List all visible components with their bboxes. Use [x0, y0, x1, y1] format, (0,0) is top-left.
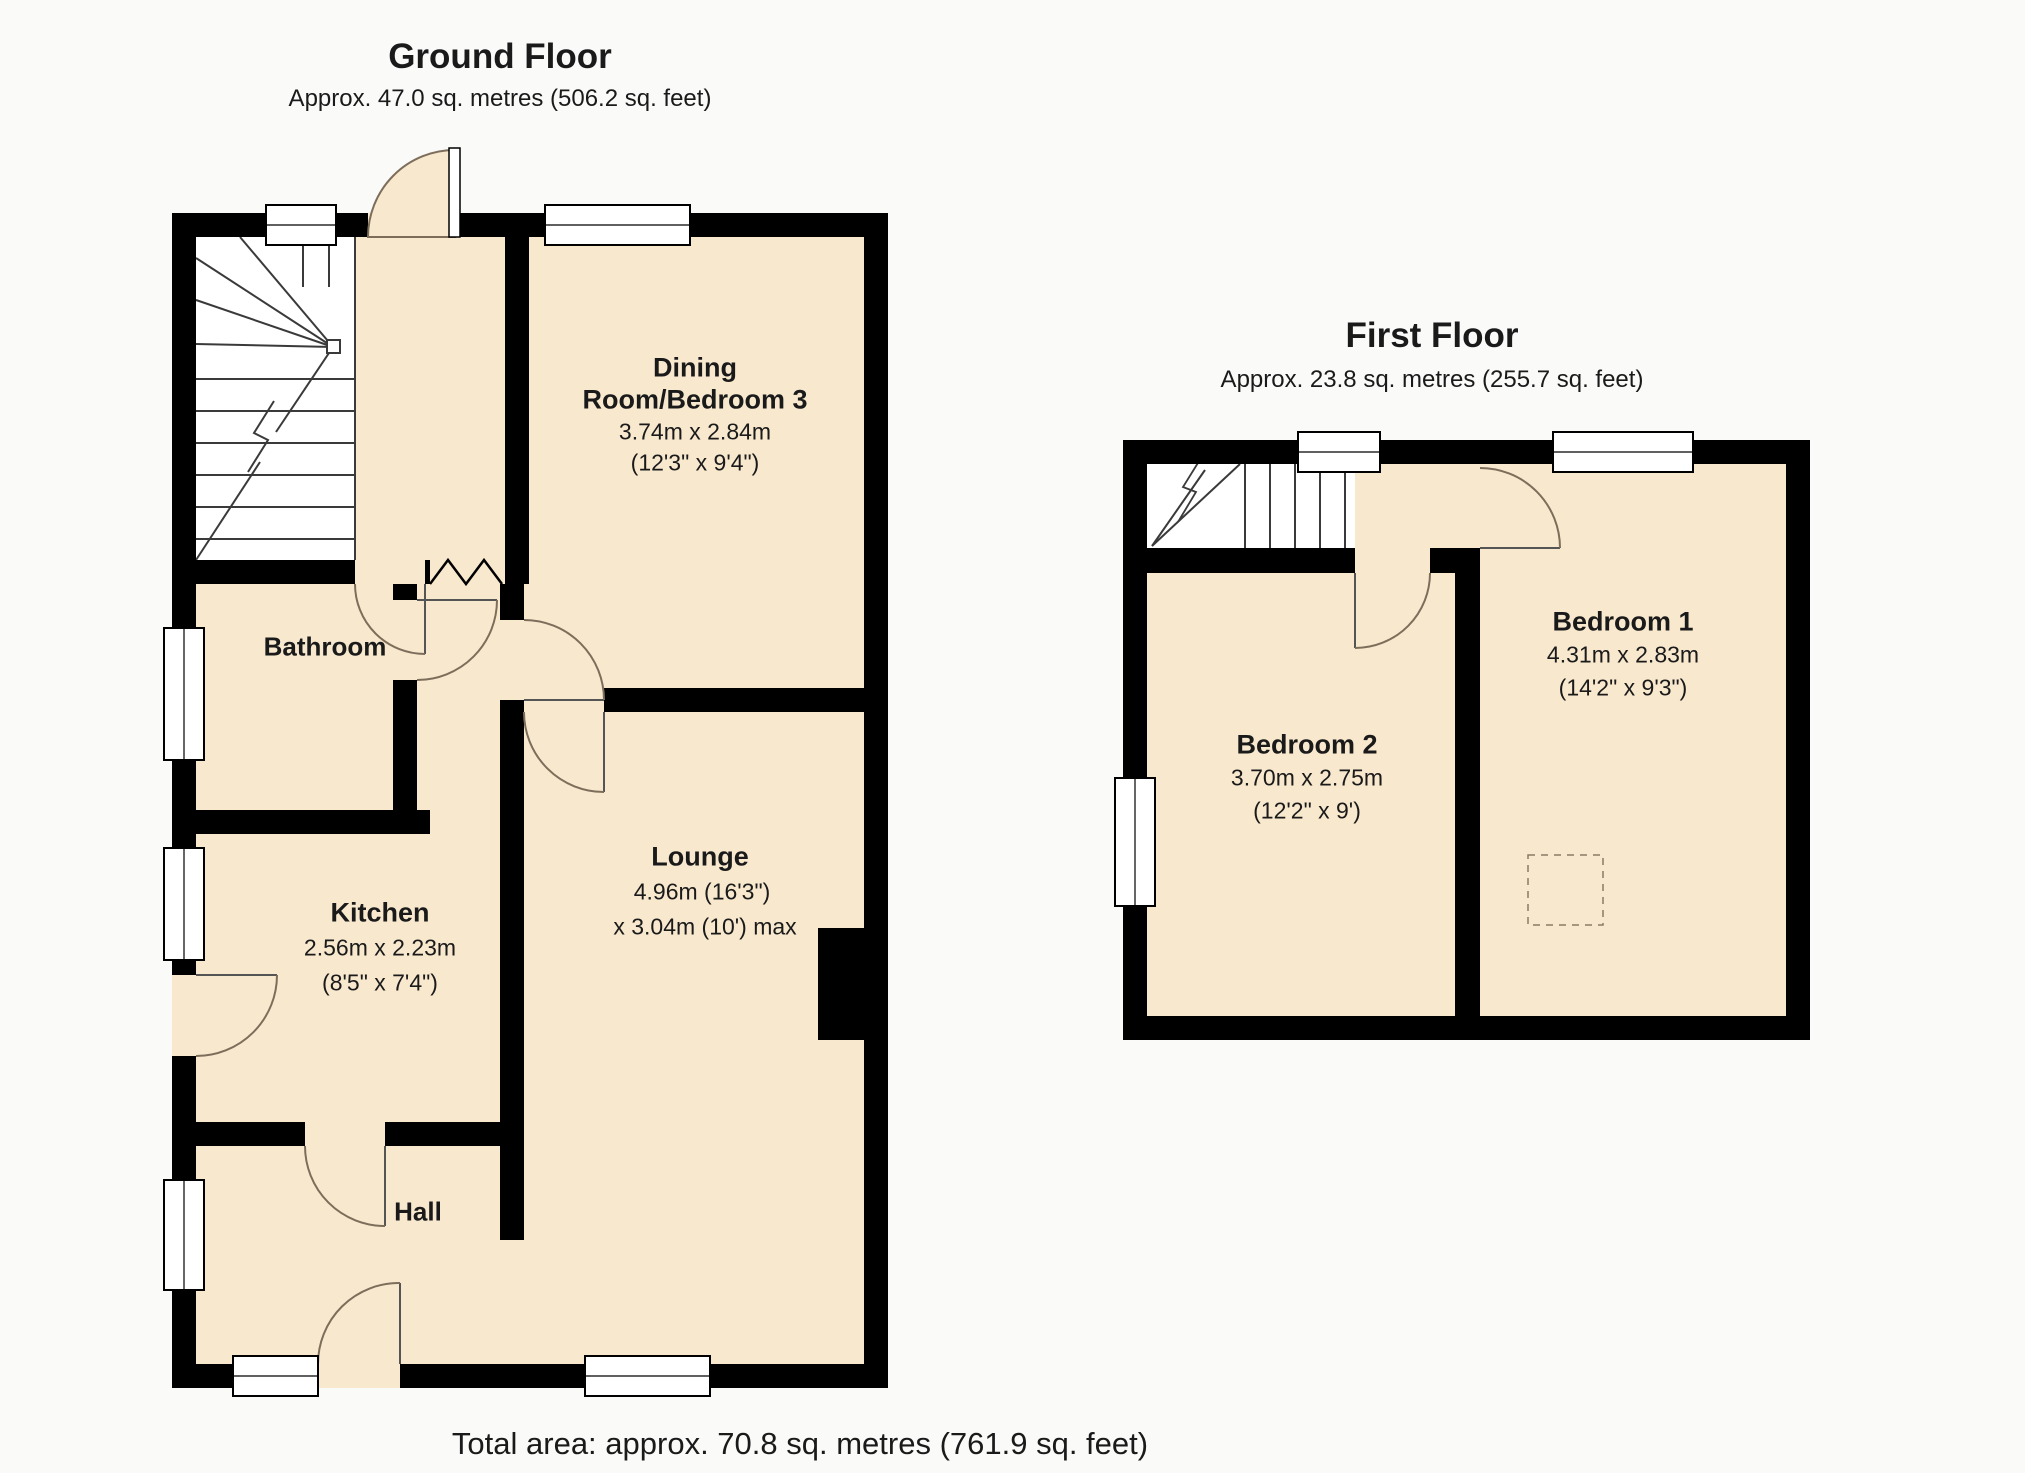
lounge-size-line2: x 3.04m (10') max	[613, 914, 796, 941]
bedroom2-size-metric: 3.70m x 2.75m	[1231, 765, 1383, 792]
ground-staircase	[196, 237, 355, 560]
ground-floor-title: Ground Floor	[388, 37, 612, 77]
bedroom1-size-imperial: (14'2" x 9'3")	[1559, 675, 1688, 702]
hall-bottom-window	[233, 1356, 318, 1396]
front-door-top	[368, 148, 460, 237]
dining-room-size-imperial: (12'3" x 9'4")	[631, 450, 760, 477]
floorplan-page: Ground Floor Approx. 47.0 sq. metres (50…	[0, 0, 2025, 1473]
lounge-window	[585, 1356, 710, 1396]
bathroom-window	[164, 628, 204, 760]
bedroom1-size-metric: 4.31m x 2.83m	[1547, 642, 1699, 669]
bedroom2-label: Bedroom 2	[1236, 730, 1377, 761]
hall-side-window	[164, 1180, 204, 1290]
first-floor-plan	[1115, 432, 1810, 1040]
stairs-window	[266, 205, 336, 245]
dining-room-label-line2: Room/Bedroom 3	[582, 385, 807, 416]
hall-label: Hall	[394, 1197, 442, 1228]
kitchen-label: Kitchen	[330, 898, 429, 929]
ground-floor-plan	[164, 148, 888, 1396]
bedroom2-window	[1115, 778, 1155, 906]
bedroom2-size-imperial: (12'2" x 9')	[1253, 798, 1361, 825]
bedroom1-label: Bedroom 1	[1552, 607, 1693, 638]
total-area-text: Total area: approx. 70.8 sq. metres (761…	[452, 1426, 1148, 1462]
lounge-size-line1: 4.96m (16'3")	[634, 879, 771, 906]
kitchen-size-metric: 2.56m x 2.23m	[304, 935, 456, 962]
dining-room-size-metric: 3.74m x 2.84m	[619, 419, 771, 446]
first-floor-subtitle: Approx. 23.8 sq. metres (255.7 sq. feet)	[1221, 366, 1644, 394]
floorplan-drawing	[0, 0, 2025, 1473]
kitchen-window	[164, 848, 204, 960]
chimney-breast	[818, 928, 888, 1040]
lounge-label: Lounge	[651, 842, 748, 873]
first-floor-title: First Floor	[1345, 316, 1518, 356]
landing-window	[1298, 432, 1380, 472]
kitchen-size-imperial: (8'5" x 7'4")	[322, 970, 438, 997]
bathroom-label: Bathroom	[264, 632, 387, 663]
bedroom1-window	[1553, 432, 1693, 472]
ground-floor-subtitle: Approx. 47.0 sq. metres (506.2 sq. feet)	[289, 85, 712, 113]
dining-room-label-line1: Dining	[653, 353, 737, 384]
dining-window	[545, 205, 690, 245]
